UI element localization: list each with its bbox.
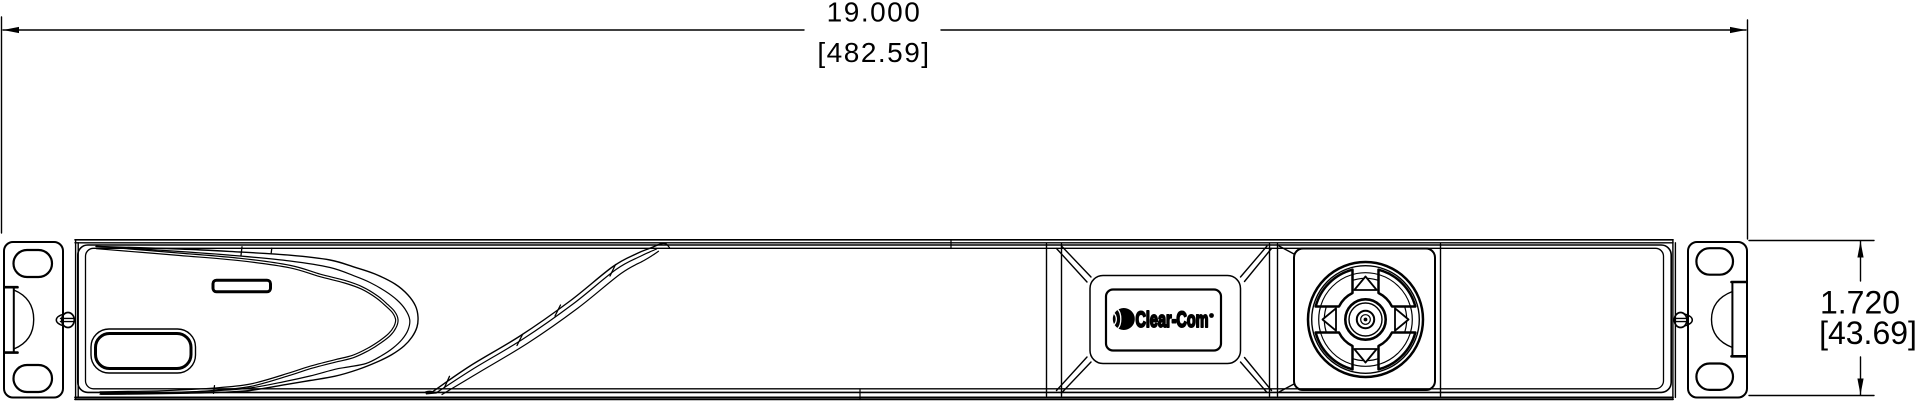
svg-text:[482.59]: [482.59]: [817, 37, 930, 68]
svg-text:[43.69]: [43.69]: [1819, 315, 1917, 351]
svg-text:19.000: 19.000: [827, 0, 922, 28]
svg-text:Clear-Com: Clear-Com: [1136, 307, 1209, 332]
